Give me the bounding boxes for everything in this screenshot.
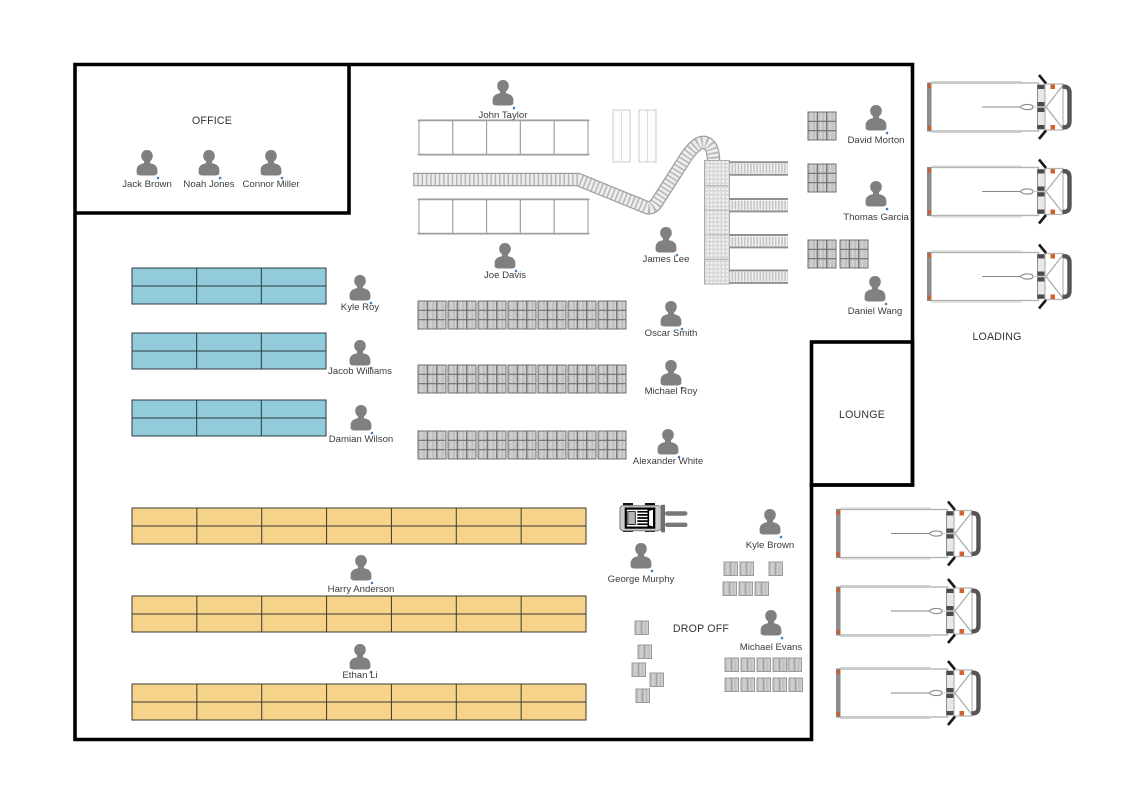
svg-text:Joe Davis: Joe Davis	[484, 270, 526, 281]
svg-text:Kyle Brown: Kyle Brown	[746, 540, 795, 551]
svg-text:Ethan Li: Ethan Li	[342, 670, 377, 681]
svg-text:Jacob Williams: Jacob Williams	[328, 366, 392, 377]
svg-text:Jack Brown: Jack Brown	[122, 179, 172, 190]
svg-text:Thomas Garcia: Thomas Garcia	[843, 212, 909, 223]
svg-text:Daniel Wang: Daniel Wang	[848, 306, 903, 317]
svg-text:Noah Jones: Noah Jones	[183, 179, 234, 190]
svg-text:James Lee: James Lee	[643, 254, 690, 265]
svg-text:Michael Evans: Michael Evans	[740, 642, 803, 653]
svg-text:LOUNGE: LOUNGE	[839, 409, 885, 421]
svg-text:LOADING: LOADING	[972, 331, 1021, 343]
svg-text:Oscar Smith: Oscar Smith	[645, 328, 698, 339]
svg-text:Michael Roy: Michael Roy	[645, 386, 698, 397]
svg-text:DROP OFF: DROP OFF	[673, 623, 729, 635]
svg-text:Kyle Roy: Kyle Roy	[341, 302, 380, 313]
svg-text:OFFICE: OFFICE	[192, 115, 232, 127]
svg-text:Harry Anderson: Harry Anderson	[328, 584, 395, 595]
svg-text:John Taylor: John Taylor	[479, 110, 529, 121]
svg-text:David Morton: David Morton	[847, 135, 904, 146]
svg-text:George Murphy: George Murphy	[608, 574, 675, 585]
svg-text:Alexander White: Alexander White	[633, 456, 703, 467]
svg-text:Connor Miller: Connor Miller	[242, 179, 300, 190]
svg-text:Damian Wilson: Damian Wilson	[329, 434, 394, 445]
